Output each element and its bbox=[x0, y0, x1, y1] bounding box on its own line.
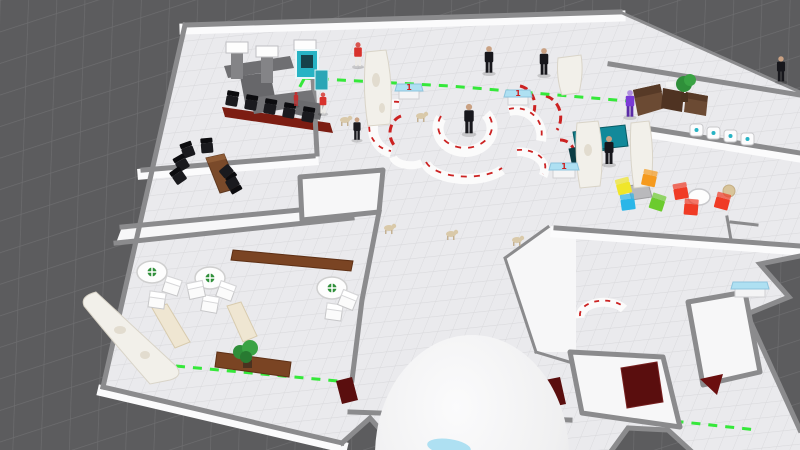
monitor-stand bbox=[261, 57, 273, 83]
sign-label: 1 bbox=[561, 162, 567, 171]
kiosk-small bbox=[315, 70, 328, 90]
colored-chair bbox=[672, 182, 689, 200]
sink-fixture bbox=[724, 130, 737, 142]
cube-chair bbox=[201, 295, 220, 314]
office-chair bbox=[244, 94, 258, 111]
sink-fixture bbox=[690, 124, 703, 136]
sign-label: 1 bbox=[406, 83, 412, 92]
cube-chair bbox=[148, 291, 166, 309]
scene-canvas[interactable]: 111 bbox=[0, 0, 800, 450]
monitor-screen bbox=[256, 46, 278, 57]
room-bottom-2 bbox=[688, 292, 760, 385]
sink-fixture bbox=[741, 133, 754, 145]
closed-room-center bbox=[300, 170, 383, 220]
sign-table: 1 bbox=[504, 89, 532, 105]
colored-chair bbox=[620, 193, 636, 211]
column-1 bbox=[364, 50, 391, 126]
sign-table bbox=[731, 282, 769, 297]
office-chair bbox=[225, 90, 239, 107]
cube-chair bbox=[187, 281, 206, 300]
monitor-screen bbox=[226, 42, 248, 53]
3d-viewport[interactable]: 111 bbox=[0, 0, 800, 450]
sign-table: 1 bbox=[395, 83, 423, 99]
lounge-cabinet bbox=[661, 88, 684, 112]
kiosk-screen bbox=[301, 55, 313, 68]
monitor-screen bbox=[294, 40, 316, 50]
round-cafe-table bbox=[137, 261, 167, 283]
colored-chair bbox=[684, 198, 699, 215]
sign-label: 1 bbox=[515, 89, 521, 98]
column-2 bbox=[558, 55, 583, 95]
sign-table: 1 bbox=[549, 162, 579, 178]
office-chair bbox=[301, 106, 315, 123]
monitor-stand bbox=[231, 53, 243, 79]
sink-fixture bbox=[707, 127, 720, 139]
office-chair bbox=[263, 98, 277, 115]
office-chair bbox=[200, 138, 213, 154]
